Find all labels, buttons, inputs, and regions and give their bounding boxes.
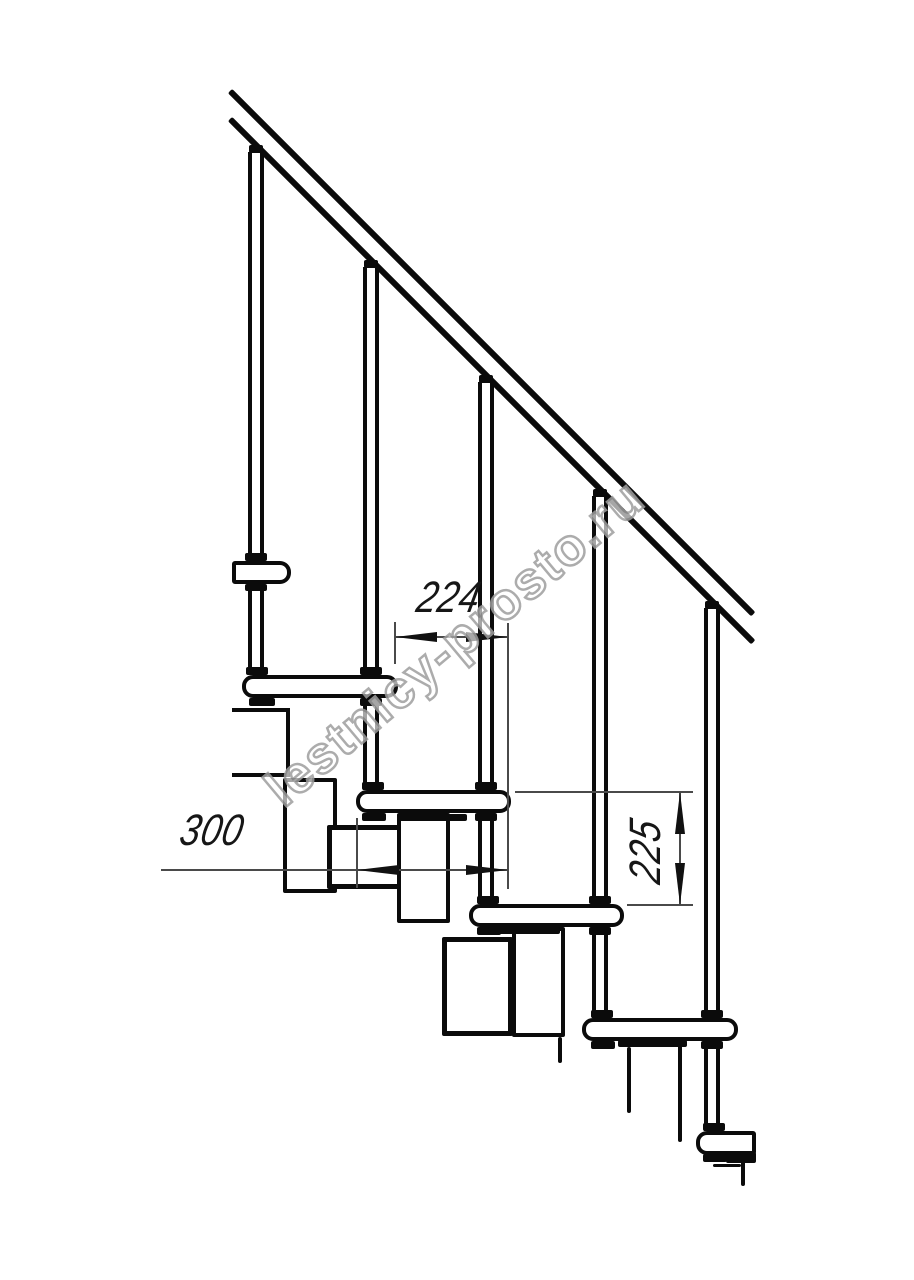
tread [356, 790, 511, 813]
baluster-collar [249, 698, 275, 706]
spine-module-edge [558, 1037, 562, 1063]
dimension-arrow-right [466, 865, 508, 875]
baluster-collar [475, 813, 497, 821]
baluster-collar [475, 782, 497, 790]
spine-module [397, 813, 450, 923]
baluster-collar [245, 584, 267, 591]
staircase-technical-drawing: 224 300 225 lestnicy-prosto.ru [0, 0, 914, 1280]
module-plate [397, 814, 467, 821]
spine-module-edge [627, 1047, 631, 1113]
baluster-collar [591, 1010, 613, 1018]
baluster-collar [703, 1154, 727, 1162]
dimension-label-300: 300 [175, 806, 248, 856]
extension-line [515, 791, 693, 793]
extension-line [507, 623, 509, 889]
baluster [704, 608, 720, 1131]
baluster-collar [701, 1041, 723, 1049]
spine-module-edge [713, 1164, 741, 1167]
tread [232, 561, 291, 584]
spine-module-edge [678, 1045, 682, 1142]
spine-module [442, 937, 513, 1036]
baluster-collar [246, 667, 268, 675]
baluster-collar [477, 896, 499, 904]
spine-module-edge [741, 1161, 745, 1186]
tread [469, 904, 624, 927]
baluster-collar [362, 782, 384, 790]
spine-module [327, 825, 403, 889]
baluster-collar [703, 1123, 725, 1131]
baluster-collar [701, 1010, 723, 1018]
dimension-label-225: 225 [621, 814, 671, 887]
baluster-collar [245, 553, 267, 561]
module-plate [488, 927, 560, 934]
baluster [248, 152, 264, 675]
dimension-line [161, 869, 508, 871]
dimension-arrow-up [675, 792, 685, 834]
module-plate [726, 1152, 756, 1163]
module-plate [618, 1040, 687, 1047]
spine-module [512, 927, 565, 1037]
baluster-collar [591, 1041, 615, 1049]
extension-line [356, 818, 358, 888]
baluster [592, 496, 608, 1018]
dimension-arrow-left [357, 865, 399, 875]
tread [582, 1018, 738, 1041]
baluster-collar [589, 896, 611, 904]
baluster-collar [589, 927, 611, 935]
baluster-collar [362, 813, 386, 821]
dimension-arrow-down [675, 863, 685, 905]
